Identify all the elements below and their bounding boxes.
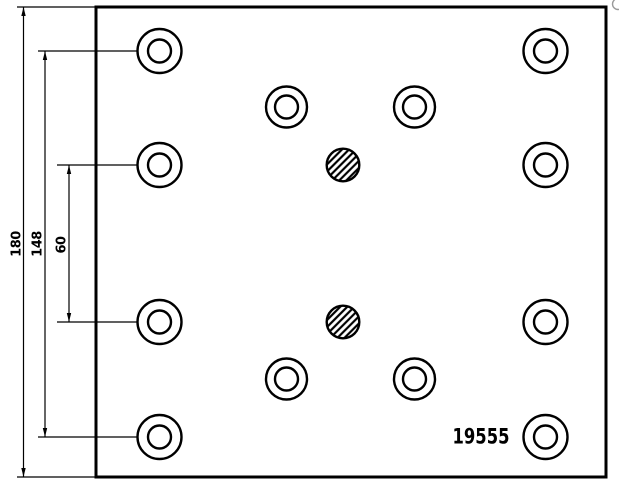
dimension-arrow-down	[43, 428, 47, 437]
dimension-arrow-up	[67, 165, 71, 174]
ring-hole-inner	[275, 96, 298, 119]
ring-hole-inner	[148, 311, 171, 334]
ring-hole-inner	[148, 426, 171, 449]
ring-hole-inner	[534, 154, 557, 177]
dimension-arrow-down	[67, 313, 71, 322]
ring-hole-inner	[534, 426, 557, 449]
ring-hole-inner	[534, 311, 557, 334]
dimension-arrow-up	[43, 51, 47, 60]
hatched-hole	[327, 149, 360, 182]
technical-drawing: 180 148 60 19555	[0, 0, 619, 490]
watermark-artifact	[613, 0, 619, 10]
ring-hole-inner	[148, 40, 171, 63]
ring-hole-inner	[534, 40, 557, 63]
ring-hole-inner	[403, 96, 426, 119]
dimension-arrow-down	[21, 468, 25, 477]
dimension-label-148: 148	[31, 231, 44, 257]
ring-hole-inner	[148, 154, 171, 177]
drawing-canvas	[0, 0, 619, 490]
dimension-label-180: 180	[10, 231, 23, 257]
part-number: 19555	[453, 427, 510, 448]
hatched-hole	[327, 306, 360, 339]
dimension-label-60: 60	[55, 236, 68, 253]
ring-hole-inner	[403, 368, 426, 391]
plate-outline	[96, 7, 606, 477]
dimension-arrow-up	[21, 7, 25, 16]
ring-hole-inner	[275, 368, 298, 391]
